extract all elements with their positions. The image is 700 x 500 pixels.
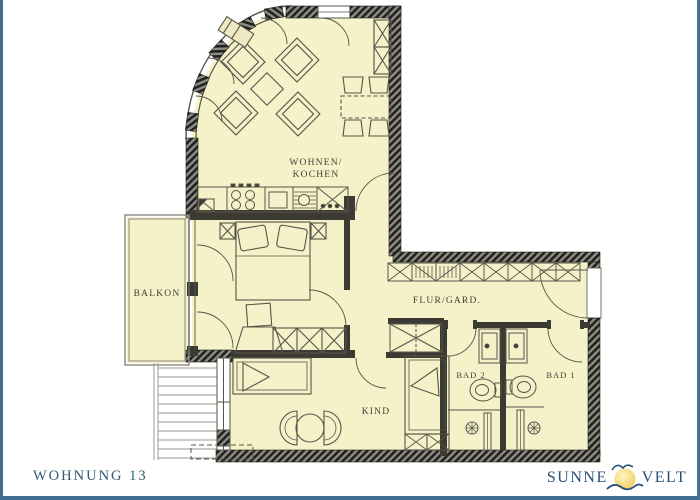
brand-text-right: VELT <box>642 469 687 487</box>
entrance-opening <box>587 268 601 318</box>
label-bath1: BAD 1 <box>546 370 575 380</box>
apartment-title: WOHNUNG 13 <box>33 468 148 485</box>
label-child: KIND <box>362 407 391 417</box>
sun-icon <box>605 458 645 498</box>
label-hall: FLUR/GARD. <box>413 296 481 306</box>
label-living-line1: WOHNEN/ <box>289 158 342 168</box>
label-balcony: BALKON <box>134 289 181 299</box>
child-window-wall <box>217 358 230 450</box>
label-bath2: BAD 2 <box>456 370 485 380</box>
label-living-line2: KOCHEN <box>293 170 340 180</box>
floorplan-page: WOHNEN/ KOCHEN BALKON FLUR/GARD. BAD 2 B… <box>0 0 700 500</box>
brand-text-left: SUNNE <box>547 469 608 487</box>
floorplan-drawing: WOHNEN/ KOCHEN BALKON FLUR/GARD. BAD 2 B… <box>3 0 700 500</box>
brand-logo: SUNNE VELT <box>541 458 693 498</box>
